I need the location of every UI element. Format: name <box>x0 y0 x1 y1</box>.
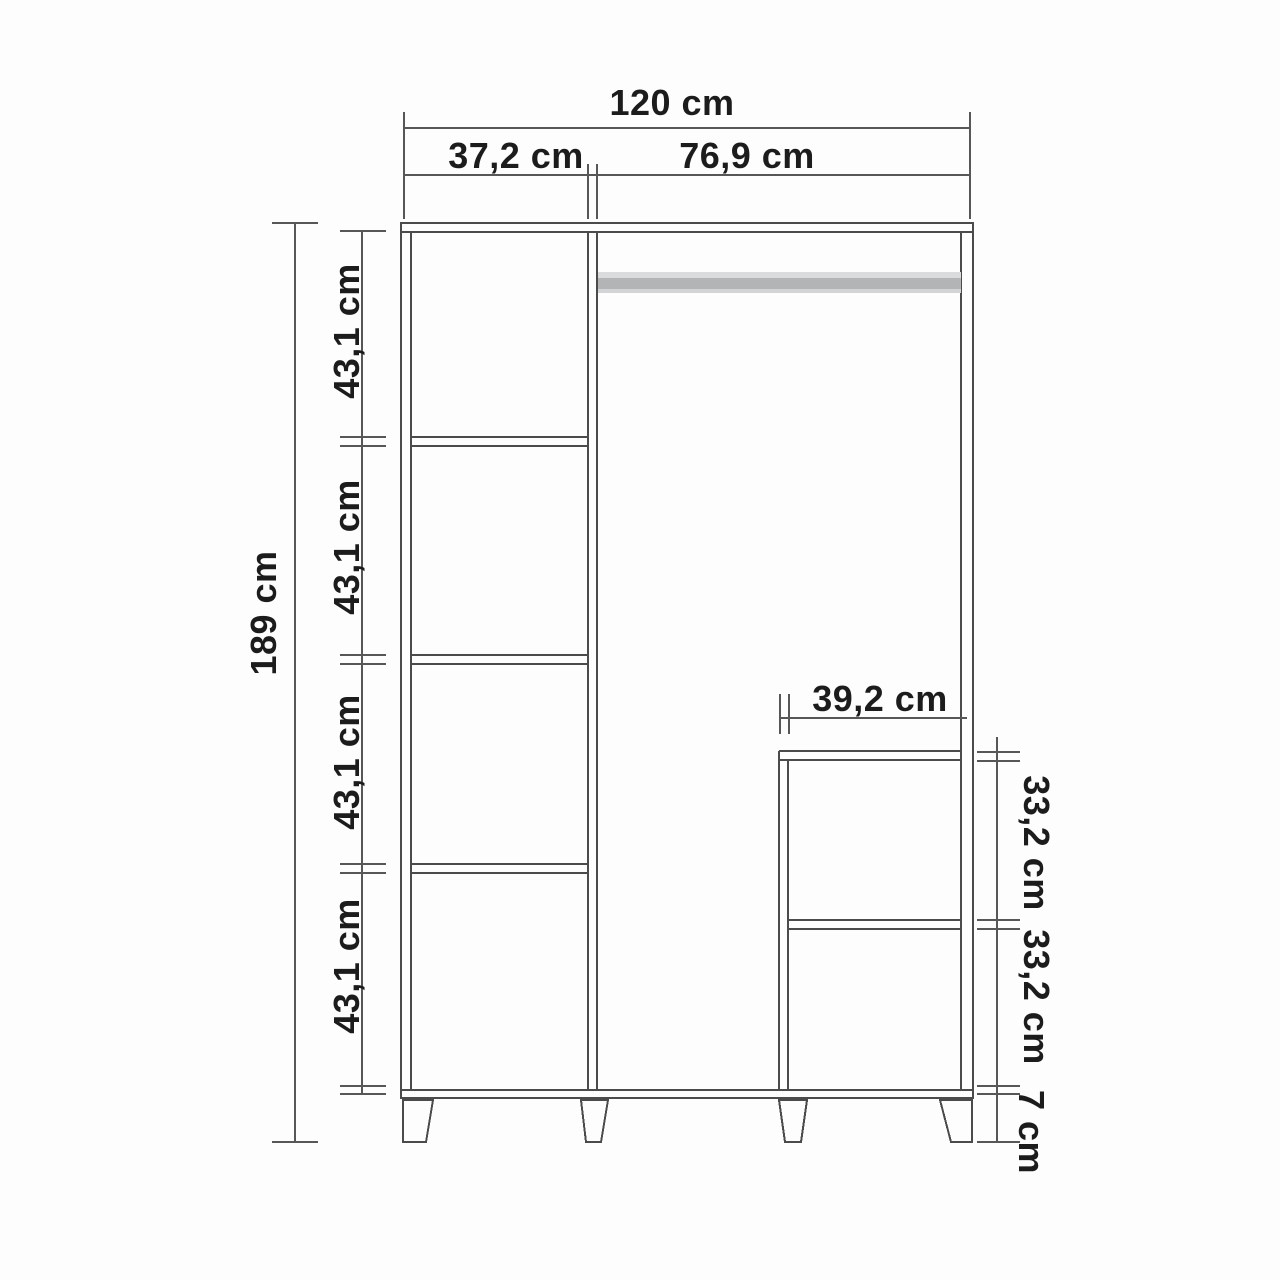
left-column-shelves <box>411 437 588 873</box>
dim-label-left-width: 37,2 cm <box>448 138 584 174</box>
dim-label-total-width: 120 cm <box>609 85 734 121</box>
dim-label-niche-height-2: 33,2 cm <box>1018 929 1054 1065</box>
dim-label-right-width: 76,9 cm <box>679 138 815 174</box>
cabinet-outer-frame <box>400 222 974 1099</box>
center-divider-panel <box>588 232 597 1090</box>
dimension-niche-heights <box>977 737 1020 1142</box>
cabinet-inner-frame <box>402 232 972 1090</box>
dim-label-niche-width: 39,2 cm <box>812 681 948 717</box>
foot-1 <box>403 1100 433 1142</box>
lower-niche-unit <box>779 751 961 1090</box>
dim-label-compartment-4: 43,1 cm <box>329 898 365 1034</box>
dim-label-total-height: 189 cm <box>246 550 282 675</box>
foot-3 <box>779 1100 807 1142</box>
cabinet-feet <box>403 1100 972 1142</box>
dim-label-niche-height-1: 33,2 cm <box>1018 775 1054 911</box>
wardrobe-line-drawing <box>0 0 1280 1280</box>
technical-drawing-canvas: 120 cm 37,2 cm 76,9 cm 189 cm 43,1 cm 43… <box>0 0 1280 1280</box>
dim-label-compartment-1: 43,1 cm <box>329 263 365 399</box>
dim-label-compartment-2: 43,1 cm <box>329 479 365 615</box>
dim-label-compartment-3: 43,1 cm <box>329 694 365 830</box>
foot-2 <box>581 1100 608 1142</box>
hanging-rod <box>598 272 961 293</box>
dimension-total-height <box>272 223 318 1142</box>
foot-4 <box>940 1100 972 1142</box>
dim-label-feet-height: 7 cm <box>1013 1090 1049 1174</box>
